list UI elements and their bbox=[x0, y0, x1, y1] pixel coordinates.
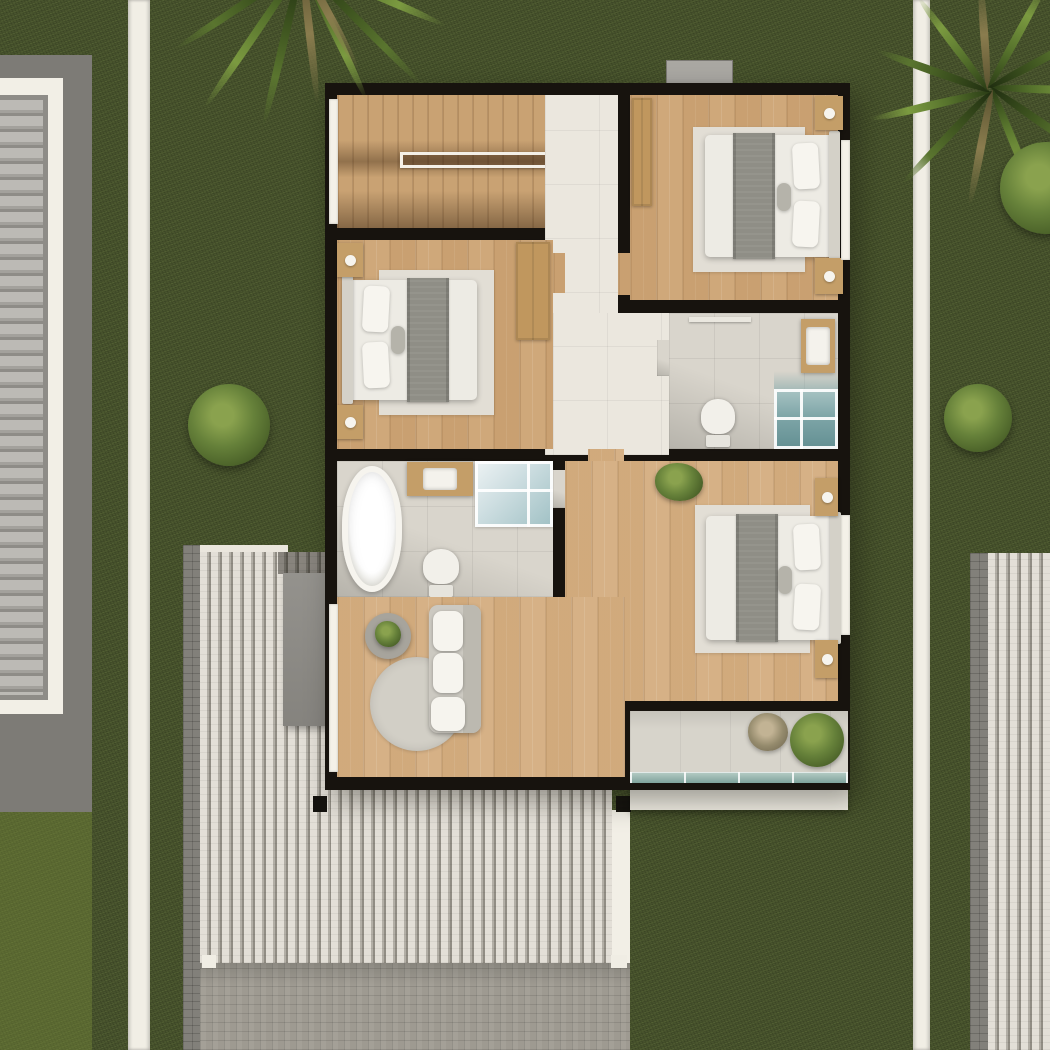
shower-glass-line bbox=[527, 461, 530, 527]
staircase bbox=[337, 95, 545, 228]
shrub-right-lawn bbox=[944, 384, 1012, 452]
pillow bbox=[793, 523, 821, 570]
palm-tree-top-right bbox=[990, 85, 992, 87]
driveway bbox=[200, 963, 630, 1050]
shower-reflection bbox=[774, 371, 838, 389]
lamp bbox=[822, 654, 833, 665]
floor-plant bbox=[655, 463, 703, 501]
porch-roof-right-fascia bbox=[612, 810, 630, 963]
sofa-cushion bbox=[431, 697, 465, 731]
pillow bbox=[362, 285, 390, 332]
pillow bbox=[793, 583, 821, 630]
toilet bbox=[701, 399, 735, 447]
pillow bbox=[792, 142, 820, 189]
bedroom-1-bed bbox=[705, 135, 837, 257]
lamp bbox=[345, 255, 356, 266]
glass-shower bbox=[475, 461, 553, 527]
sink bbox=[806, 327, 830, 365]
balcony-glass-railing bbox=[630, 772, 848, 783]
lounge-area bbox=[337, 597, 625, 777]
toilet-bowl bbox=[423, 549, 459, 584]
coffee-table bbox=[365, 613, 411, 659]
toilet-tank bbox=[429, 585, 453, 597]
shrub-left-lawn bbox=[188, 384, 270, 466]
lamp bbox=[824, 108, 835, 119]
window-strip bbox=[329, 604, 338, 772]
accent-pillow bbox=[777, 183, 791, 211]
upper-floor-plan bbox=[325, 83, 850, 790]
door-opening bbox=[588, 449, 624, 461]
right-striped-roof bbox=[988, 553, 1050, 1050]
sofa-cushion bbox=[433, 611, 463, 651]
support-post-left bbox=[313, 796, 327, 812]
nightstand bbox=[815, 640, 838, 678]
sink bbox=[423, 468, 457, 490]
blanket-runner bbox=[736, 514, 778, 642]
lamp bbox=[824, 271, 835, 282]
blanket-runner bbox=[733, 133, 775, 259]
towel-rail bbox=[689, 317, 751, 322]
nightstand bbox=[815, 478, 838, 516]
support-post-right bbox=[616, 796, 631, 812]
headboard bbox=[342, 276, 353, 404]
nightstand bbox=[337, 405, 363, 439]
sofa bbox=[429, 605, 481, 733]
sofa-cushion bbox=[433, 653, 463, 693]
left-house-metal-roof bbox=[0, 95, 48, 700]
table-plant bbox=[375, 621, 401, 647]
shower-glass-line bbox=[475, 489, 553, 492]
door-opening bbox=[553, 470, 565, 508]
flat-canopy bbox=[283, 573, 331, 726]
porch-roof-shadow bbox=[278, 552, 331, 574]
toilet bbox=[423, 549, 459, 597]
nightstand bbox=[337, 243, 363, 277]
lamp bbox=[822, 492, 833, 503]
window-strip bbox=[841, 515, 850, 635]
toilet-tank bbox=[706, 435, 729, 447]
bathroom-2-vanity bbox=[407, 462, 473, 496]
bedroom-2-wardrobe bbox=[516, 242, 550, 340]
bathroom-2 bbox=[337, 461, 553, 597]
nightstand bbox=[815, 96, 843, 130]
bedroom-1 bbox=[630, 95, 838, 300]
toilet-bowl bbox=[701, 399, 735, 434]
left-paver-strip bbox=[183, 545, 200, 1050]
bedroom-2-bed bbox=[345, 280, 477, 400]
balcony-shrub bbox=[790, 713, 844, 767]
pillow bbox=[792, 200, 820, 247]
bedroom-3-bed bbox=[706, 516, 838, 640]
accent-pillow bbox=[391, 326, 405, 354]
window-strip bbox=[841, 140, 850, 260]
door-opening bbox=[657, 340, 669, 376]
window-strip bbox=[329, 99, 338, 224]
headboard bbox=[830, 512, 841, 644]
shrub-top-right-corner bbox=[1000, 142, 1050, 234]
bathroom-1 bbox=[669, 313, 838, 449]
bedroom-1-closet bbox=[632, 98, 652, 206]
right-paver-strip bbox=[970, 553, 988, 1050]
balcony bbox=[630, 711, 848, 772]
walk-in-shower bbox=[774, 389, 838, 449]
right-sidewalk bbox=[913, 0, 930, 1050]
bathtub bbox=[342, 466, 402, 592]
headboard bbox=[829, 131, 840, 261]
bedroom-2 bbox=[337, 240, 553, 449]
light-grass-patch bbox=[0, 810, 92, 1050]
door-opening bbox=[553, 253, 565, 293]
dried-shrub bbox=[748, 713, 788, 751]
accent-pillow bbox=[778, 566, 792, 594]
nightstand bbox=[815, 258, 843, 294]
blanket-runner bbox=[407, 278, 449, 402]
bathroom-1-vanity bbox=[801, 319, 835, 373]
door-opening bbox=[618, 253, 630, 295]
pillow bbox=[362, 341, 390, 388]
column-base-right bbox=[611, 955, 627, 968]
column-base-left bbox=[202, 955, 216, 968]
lamp bbox=[345, 417, 356, 428]
floor-plan-render bbox=[0, 0, 1050, 1050]
left-sidewalk bbox=[128, 0, 150, 1050]
shower-glass-line bbox=[774, 417, 838, 420]
hallway-floor-mid bbox=[553, 313, 669, 455]
stair-handrail bbox=[400, 152, 548, 168]
sofa-back bbox=[463, 605, 481, 733]
porch-roof-south bbox=[331, 788, 612, 963]
